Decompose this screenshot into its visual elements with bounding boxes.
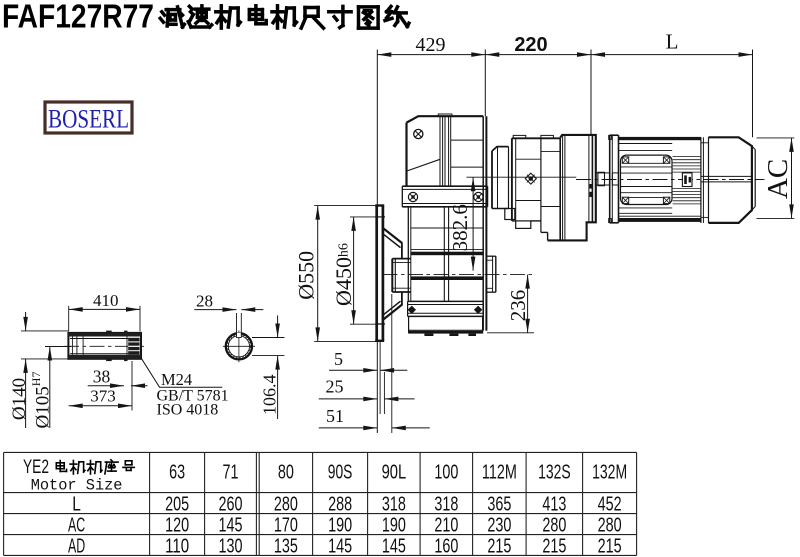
svg-text:280: 280 <box>542 514 566 537</box>
svg-text:51: 51 <box>326 406 344 426</box>
svg-text:AD: AD <box>68 535 85 557</box>
svg-text:106.4: 106.4 <box>260 375 280 416</box>
svg-text:190: 190 <box>382 514 406 537</box>
svg-text:145: 145 <box>382 535 406 557</box>
svg-text:80: 80 <box>278 461 294 484</box>
svg-text:410: 410 <box>93 291 119 310</box>
svg-text:130: 130 <box>219 535 243 557</box>
svg-text:215: 215 <box>487 535 511 557</box>
svg-text:38: 38 <box>93 367 111 387</box>
svg-text:170: 170 <box>274 514 298 537</box>
svg-text:260: 260 <box>219 493 243 516</box>
svg-text:28: 28 <box>196 292 213 311</box>
svg-text:452: 452 <box>598 493 622 516</box>
svg-text:90S: 90S <box>328 461 353 484</box>
svg-text:190: 190 <box>328 514 352 537</box>
svg-text:210: 210 <box>434 514 458 537</box>
svg-text:AC: AC <box>762 159 794 199</box>
svg-text:215: 215 <box>542 535 566 557</box>
svg-text:BOSERL: BOSERL <box>48 104 129 134</box>
svg-text:132S: 132S <box>538 461 571 484</box>
svg-text:429: 429 <box>416 34 446 56</box>
svg-text:110: 110 <box>165 535 189 557</box>
svg-text:FAF127R77: FAF127R77 <box>2 0 154 35</box>
svg-text:AC: AC <box>68 514 85 537</box>
svg-text:L: L <box>72 493 81 516</box>
svg-text:318: 318 <box>434 493 458 516</box>
svg-text:215: 215 <box>598 535 622 557</box>
svg-text:145: 145 <box>328 535 352 557</box>
svg-text:413: 413 <box>542 493 566 516</box>
svg-text:90L: 90L <box>382 461 407 484</box>
svg-text:112M: 112M <box>482 461 517 484</box>
svg-text:L: L <box>666 30 679 54</box>
svg-text:5: 5 <box>334 349 343 369</box>
svg-text:236: 236 <box>506 290 530 322</box>
svg-text:Ø140: Ø140 <box>9 378 30 420</box>
svg-text:63: 63 <box>169 461 185 484</box>
svg-text:132M: 132M <box>592 461 627 484</box>
svg-text:25: 25 <box>326 377 344 397</box>
svg-text:160: 160 <box>434 535 458 557</box>
svg-text:318: 318 <box>382 493 406 516</box>
svg-text:Ø450h6: Ø450h6 <box>331 243 356 306</box>
svg-text:M24: M24 <box>161 370 192 389</box>
svg-text:YE2: YE2 <box>23 457 49 478</box>
svg-text:280: 280 <box>274 493 298 516</box>
svg-text:135: 135 <box>274 535 298 557</box>
svg-text:205: 205 <box>165 493 189 516</box>
svg-text:145: 145 <box>219 514 243 537</box>
svg-text:120: 120 <box>165 514 189 537</box>
svg-text:373: 373 <box>90 387 116 406</box>
svg-text:Ø550: Ø550 <box>294 251 319 300</box>
svg-text:365: 365 <box>487 493 511 516</box>
svg-text:ISO 4018: ISO 4018 <box>157 402 219 419</box>
svg-text:100: 100 <box>434 461 458 484</box>
svg-text:288: 288 <box>328 493 352 516</box>
svg-text:220: 220 <box>514 34 547 56</box>
svg-text:382.6: 382.6 <box>448 204 472 251</box>
svg-text:71: 71 <box>223 461 239 484</box>
svg-text:280: 280 <box>598 514 622 537</box>
svg-text:230: 230 <box>487 514 511 537</box>
